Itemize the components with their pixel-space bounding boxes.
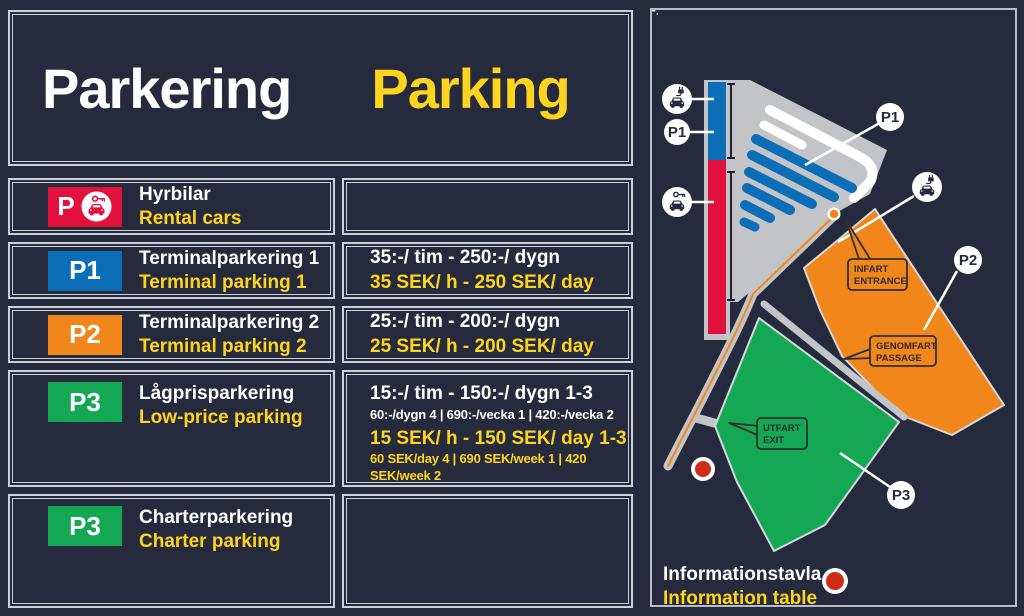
svg-text:PASSAGE: PASSAGE — [876, 353, 922, 364]
svg-text:UTFART: UTFART — [763, 423, 801, 434]
header-panel: Parkering Parking — [8, 10, 633, 166]
p1-lot-marker: P1 — [876, 103, 904, 131]
p1-badge-label: P1 — [69, 255, 101, 286]
charter-title-en: Charter parking — [139, 530, 293, 554]
p3-low-badge-label: P3 — [69, 387, 101, 418]
svg-text:ENTRANCE: ENTRANCE — [854, 276, 907, 287]
rental-curb-strip — [708, 160, 726, 334]
map-panel: P1 P1 P2 P3 INFART ENTRANCE — [650, 8, 1017, 607]
parking-fee-table: P Hyrbilar Rental cars P1 Terminalparker… — [8, 178, 633, 608]
p3-low-price-sv-small: 60:-/dygn 4 | 690:-/vecka 1 | 420:-/veck… — [370, 407, 614, 424]
row-p1-price-cell: 35:-/ tim - 250:-/ dygn 35 SEK/ h - 250 … — [342, 242, 633, 299]
svg-text:P1: P1 — [668, 124, 686, 141]
p3-charter-badge-label: P3 — [69, 511, 101, 542]
p1-curb-strip — [708, 82, 726, 160]
charter-title-sv: Charterparkering — [139, 506, 293, 530]
title-english: Parking — [371, 56, 569, 121]
row-p2-price-cell: 25:-/ tim - 200:-/ dygn 25 SEK/ h - 200 … — [342, 306, 633, 363]
p1-title-en: Terminal parking 1 — [139, 271, 319, 295]
map-legend: Informationstavla Information table — [663, 564, 848, 605]
p3-low-price-sv: 15:-/ tim - 150:-/ dygn 1-3 — [370, 382, 593, 407]
rental-badge-letter: P — [57, 191, 74, 222]
entrance-point — [828, 208, 841, 221]
svg-text:P1: P1 — [881, 109, 899, 126]
rental-title-sv: Hyrbilar — [139, 183, 241, 207]
car-with-key-icon — [80, 190, 113, 223]
row-p2-label-cell: P2 Terminalparkering 2 Terminal parking … — [8, 306, 335, 363]
p3-low-price-en-small: 60 SEK/day 4 | 690 SEK/week 1 | 420 SEK/… — [370, 451, 631, 485]
p1-price-en: 35 SEK/ h - 250 SEK/ day — [370, 271, 594, 296]
rental-marker — [662, 187, 692, 217]
p2-price-en: 25 SEK/ h - 200 SEK/ day — [370, 335, 594, 360]
svg-text:P2: P2 — [959, 252, 977, 269]
info-dot-map — [691, 457, 715, 481]
exit-stub-road — [696, 418, 718, 424]
row-charter-price-cell — [342, 494, 633, 608]
p2-badge: P2 — [48, 315, 122, 355]
p3-marker: P3 — [887, 481, 915, 509]
row-p1-label-cell: P1 Terminalparkering 1 Terminal parking … — [8, 242, 335, 299]
rental-title-en: Rental cars — [139, 207, 241, 231]
p3-low-price-en: 15 SEK/ h - 150 SEK/ day 1-3 — [370, 427, 627, 452]
row-rental-price-cell — [342, 178, 633, 235]
p3-low-title-en: Low-price parking — [139, 406, 303, 430]
svg-text:GENOMFART: GENOMFART — [876, 341, 937, 352]
p2-price-sv: 25:-/ tim - 200:-/ dygn — [370, 310, 560, 335]
svg-text:EXIT: EXIT — [763, 435, 784, 446]
p2-badge-label: P2 — [69, 319, 101, 350]
svg-text:P3: P3 — [892, 487, 910, 504]
legend-swedish: Informationstavla — [663, 564, 822, 585]
row-rental-label-cell: P Hyrbilar Rental cars — [8, 178, 335, 235]
rental-badge: P — [48, 187, 122, 227]
p2-marker: P2 — [954, 246, 982, 274]
parking-map: P1 P1 P2 P3 INFART ENTRANCE — [652, 10, 1015, 605]
car-with-plug-icon — [652, 10, 659, 19]
info-dot-icon — [822, 568, 848, 594]
svg-text:INFART: INFART — [854, 264, 889, 275]
p1-strip-marker: P1 — [664, 119, 690, 145]
row-p3low-price-cell: 15:-/ tim - 150:-/ dygn 1-3 60:-/dygn 4 … — [342, 370, 633, 487]
legend-english: Information table — [663, 588, 817, 605]
ev-charging-marker-p2 — [912, 172, 942, 202]
ev-charging-marker-left — [652, 10, 692, 114]
p3-low-badge: P3 — [48, 382, 122, 422]
p1-badge: P1 — [48, 251, 122, 291]
row-p3low-label-cell: P3 Lågprisparkering Low-price parking — [8, 370, 335, 487]
p3-charter-badge: P3 — [48, 506, 122, 546]
title-swedish: Parkering — [42, 56, 291, 121]
row-charter-label-cell: P3 Charterparkering Charter parking — [8, 494, 335, 608]
p2-title-sv: Terminalparkering 2 — [139, 311, 319, 335]
p2-title-en: Terminal parking 2 — [139, 335, 319, 359]
p1-title-sv: Terminalparkering 1 — [139, 247, 319, 271]
p3-low-title-sv: Lågprisparkering — [139, 382, 303, 406]
p1-price-sv: 35:-/ tim - 250:-/ dygn — [370, 246, 560, 271]
